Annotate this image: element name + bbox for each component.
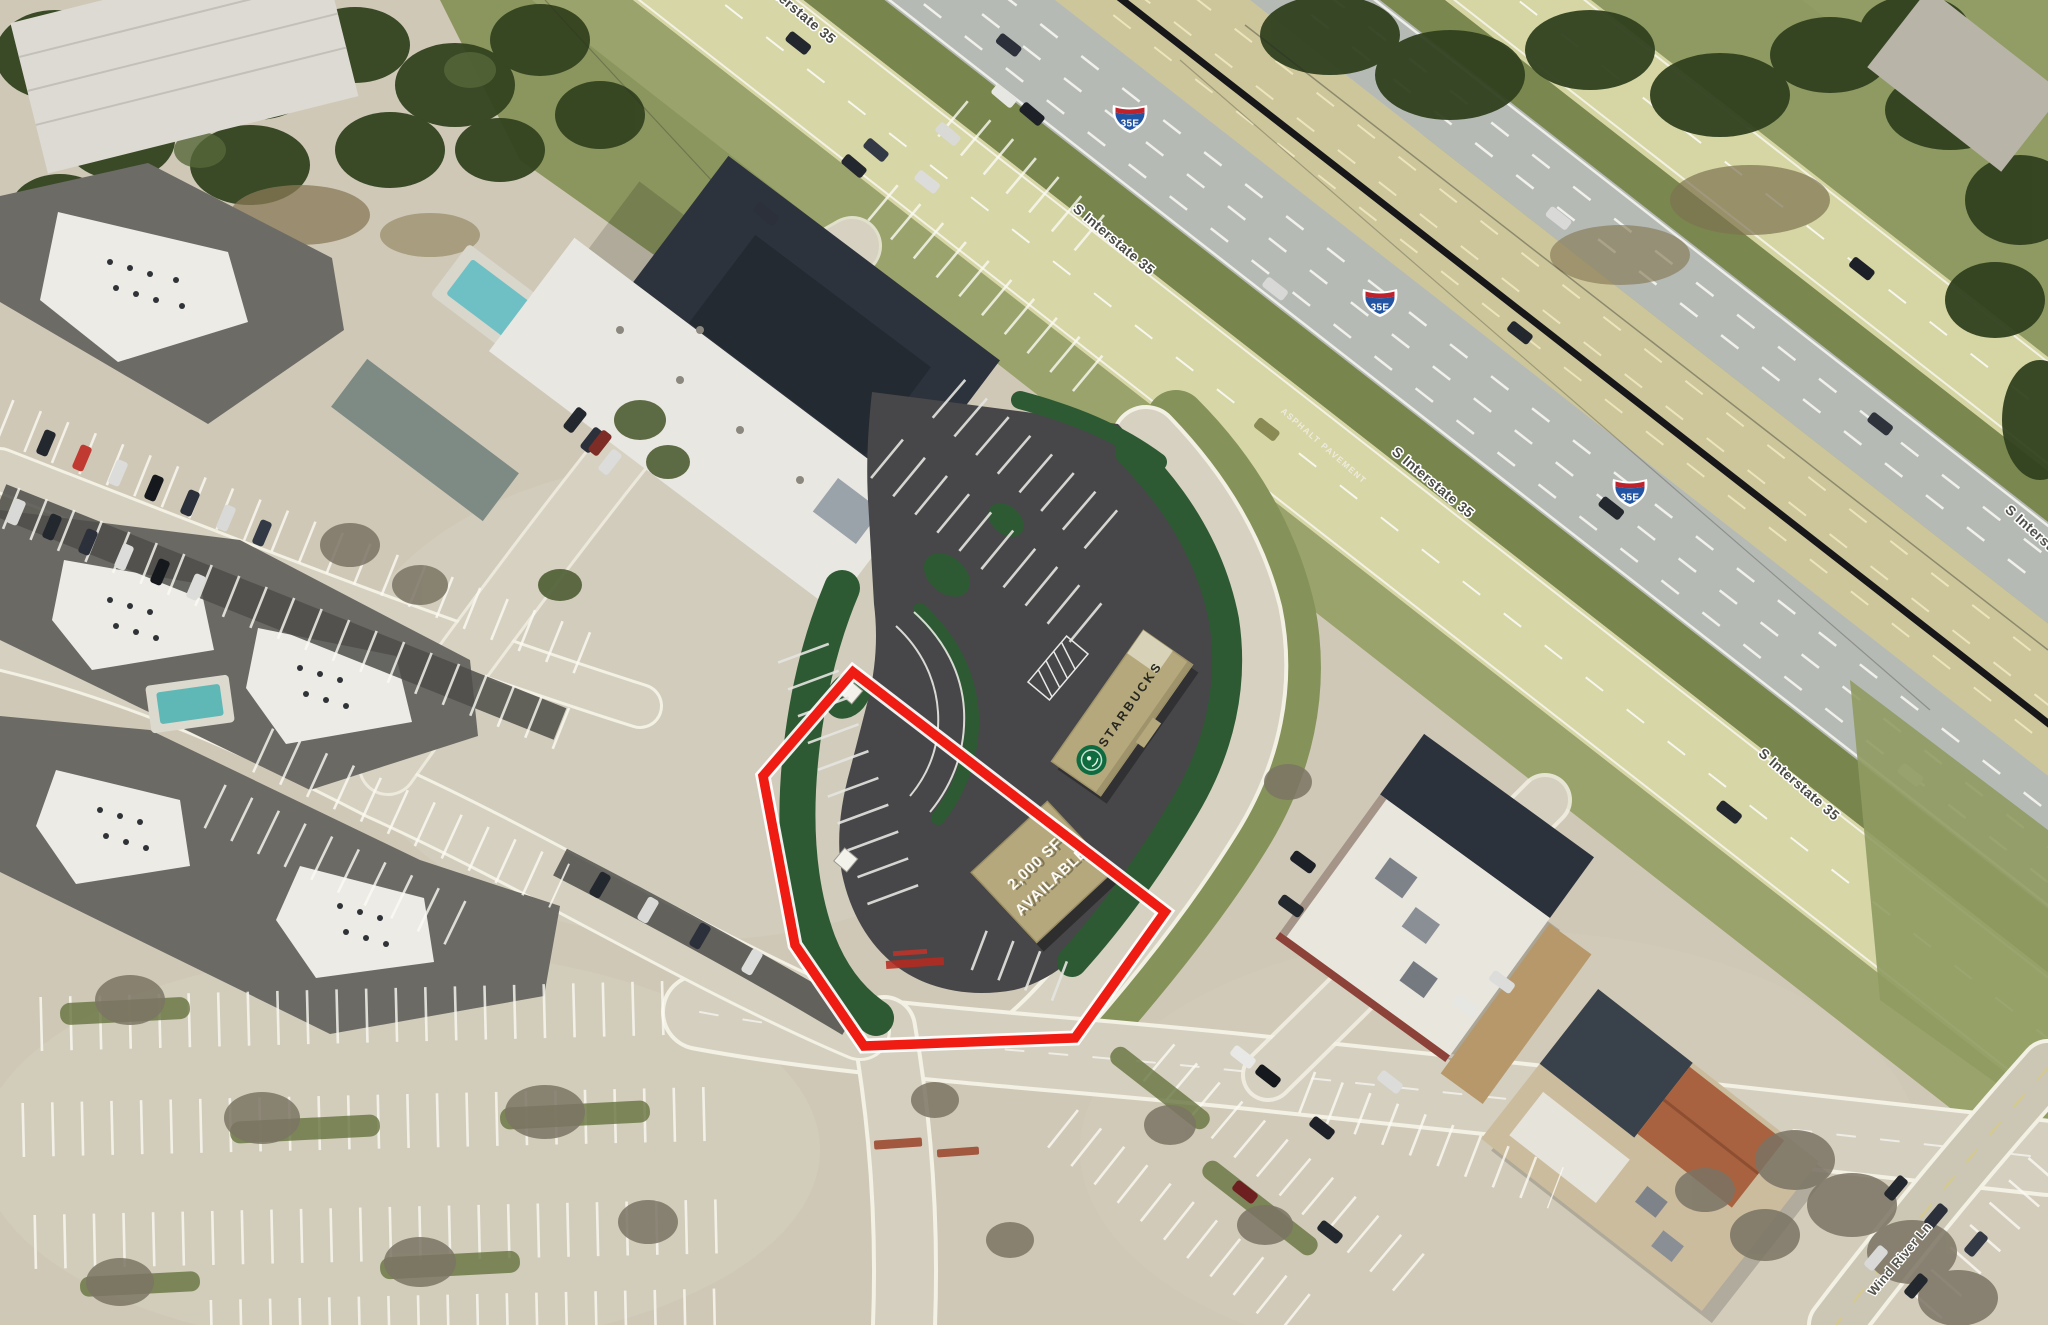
south-road <box>884 1028 905 1325</box>
map-canvas: 35E <box>0 0 2048 1325</box>
aerial-site-map: 35E <box>0 0 2048 1325</box>
